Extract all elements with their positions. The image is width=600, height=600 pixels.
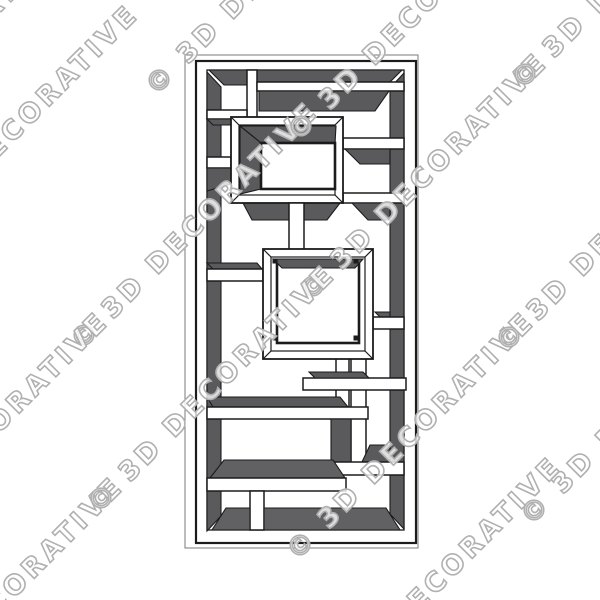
stub-right: [373, 317, 404, 329]
rail-under-square: [303, 378, 406, 390]
product-image: © 3D DECORATIVE© 3D DECORATIVE© 3D DECOR…: [0, 0, 600, 600]
rail-left-3-reveal: [207, 263, 262, 269]
product-render-svg: © 3D DECORATIVE© 3D DECORATIVE© 3D DECOR…: [0, 0, 600, 600]
square-corner-dot: [354, 336, 359, 341]
rail-left-2: [207, 157, 231, 168]
connector-vert-upper: [289, 203, 304, 250]
rail-under-square-reveal: [309, 372, 369, 378]
bottom-divider: [250, 491, 264, 530]
watermark-text: © 3D DECORATIVE: [489, 97, 600, 358]
lower-shelf-rail: [207, 478, 346, 491]
watermark-text: © 3D DECORATIVE: [0, 0, 145, 259]
elbow-reveal: [331, 419, 351, 462]
lower-shelf-top: [210, 460, 345, 478]
left-frame-reveal: [207, 72, 221, 531]
shelf-rail: [207, 407, 368, 419]
stub-upper-right: [343, 138, 404, 149]
shelf-rail-reveal: [207, 397, 348, 407]
top-divider: [247, 70, 257, 118]
watermark-text: © 3D DECORATIVE: [505, 0, 600, 95]
square-corner-dot: [273, 259, 278, 264]
rail-left-3: [207, 269, 263, 281]
